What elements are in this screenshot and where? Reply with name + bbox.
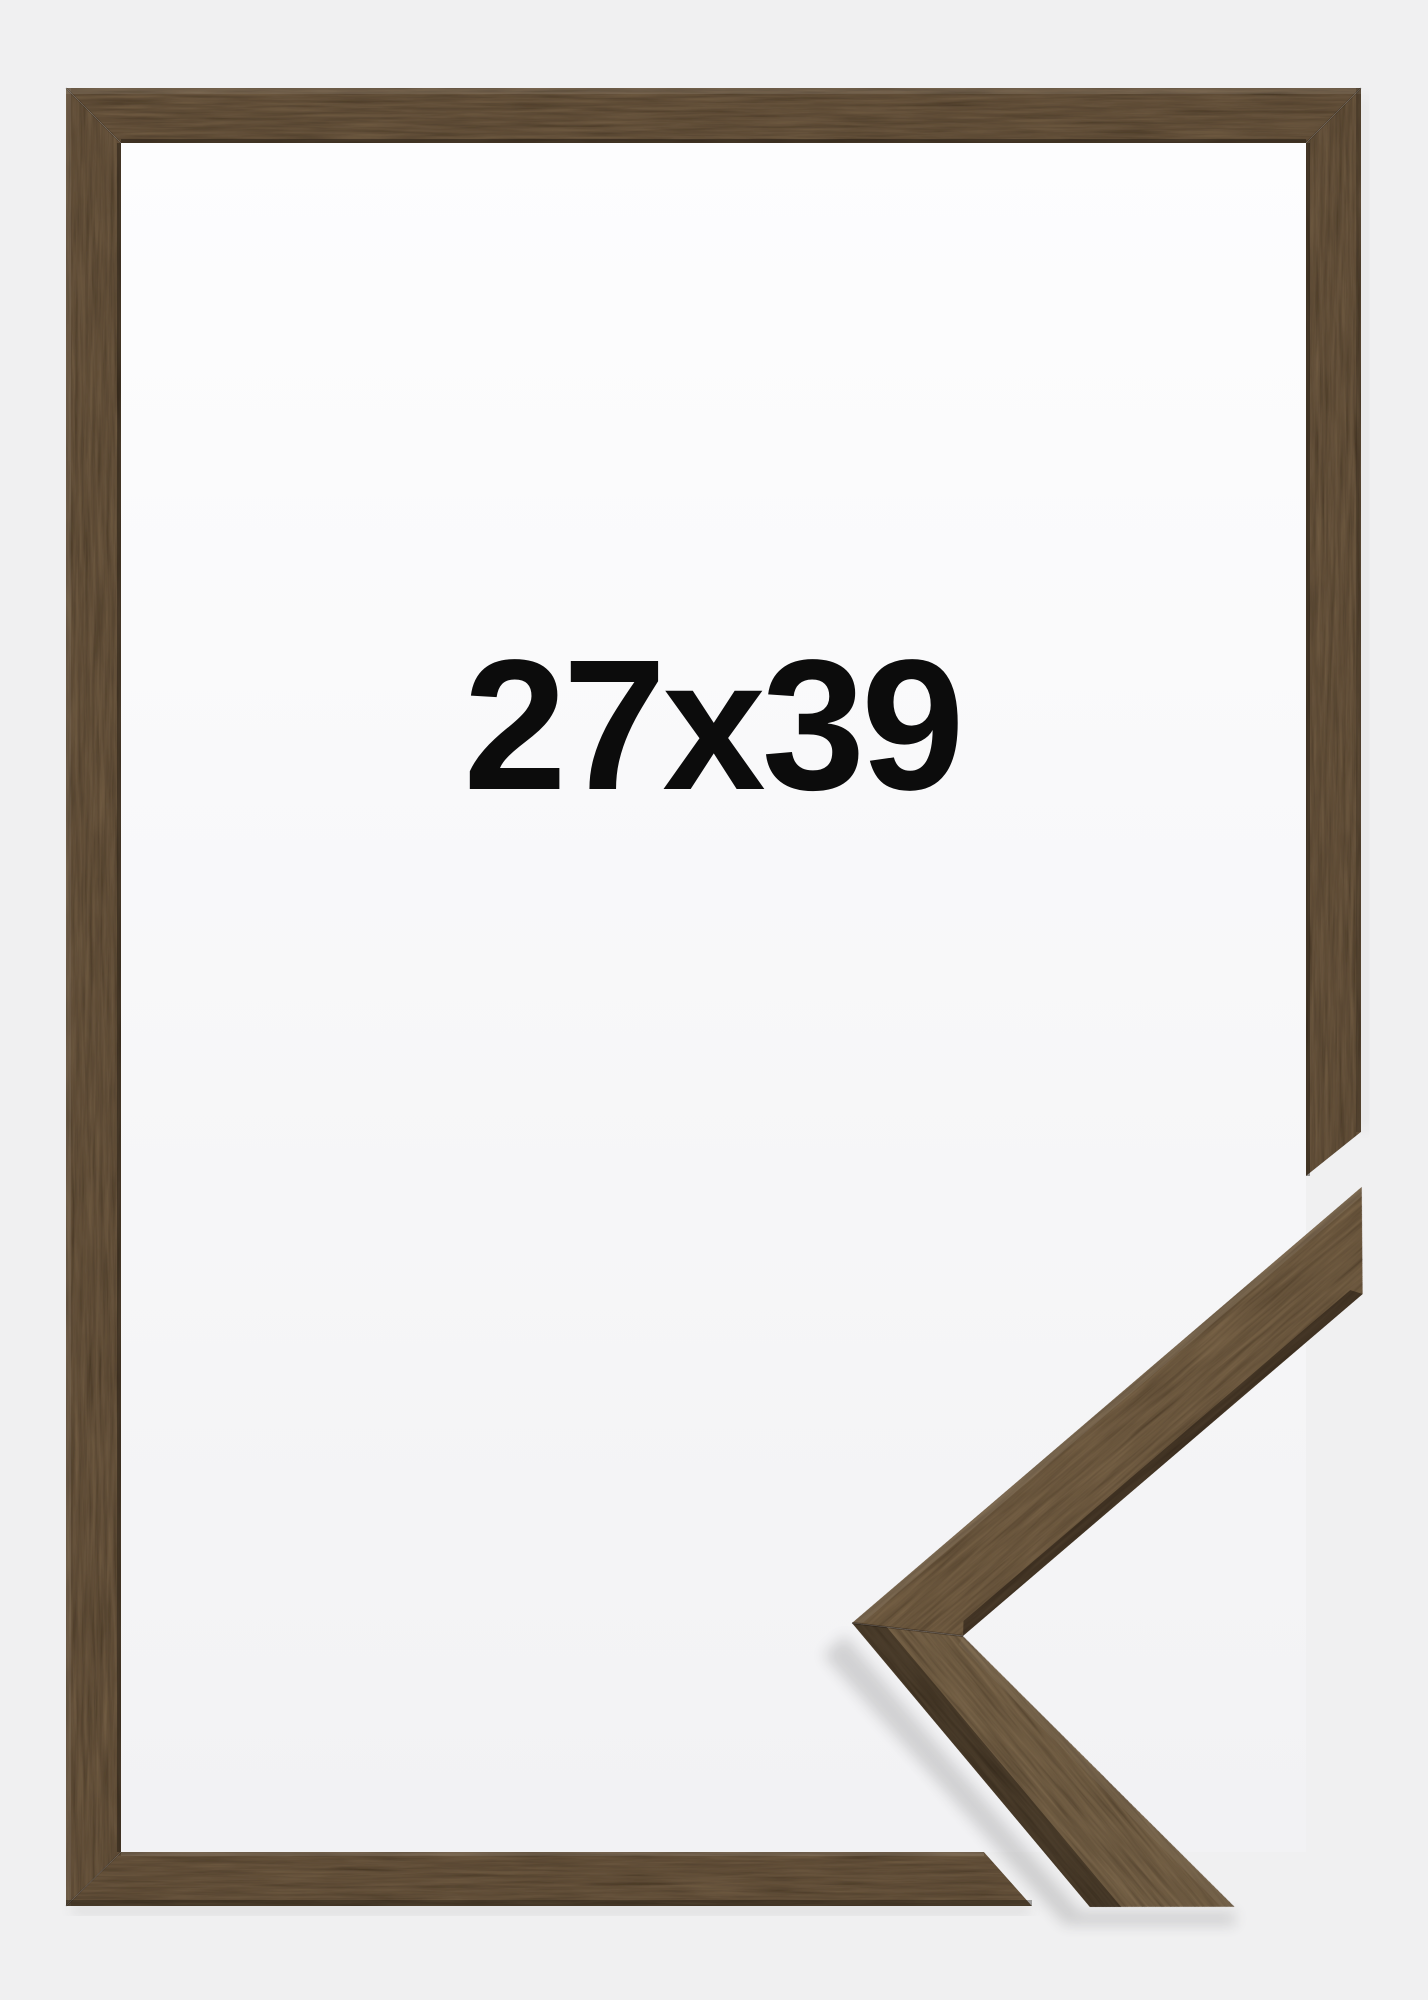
frame-left-bevel-light bbox=[66, 88, 71, 1906]
frame-bottom-inner-light bbox=[121, 1852, 984, 1856]
frame-bottom-outer-edge bbox=[66, 1900, 1032, 1906]
frame-top-bar bbox=[66, 88, 1361, 143]
frame-opening bbox=[121, 143, 1306, 1852]
product-photo: 27x39 bbox=[0, 0, 1428, 2000]
frame-bottom-shadow bbox=[72, 1906, 1030, 1913]
frame-right-bar-cut bbox=[1306, 88, 1361, 1176]
frame-top-bevel-light bbox=[66, 88, 1361, 94]
frame-bottom-bar-cut bbox=[66, 1852, 1032, 1906]
frame-top-inner-edge bbox=[121, 139, 1306, 143]
frame-left-bar bbox=[66, 88, 121, 1906]
frame-right-shadow bbox=[1361, 96, 1367, 1130]
frame-scene: 27x39 bbox=[0, 0, 1428, 2000]
size-label: 27x39 bbox=[463, 622, 960, 829]
frame-right-outer-edge bbox=[1356, 88, 1361, 1132]
frame-right-inner-edge bbox=[1306, 143, 1310, 1176]
frame-left-inner-edge bbox=[117, 143, 121, 1852]
